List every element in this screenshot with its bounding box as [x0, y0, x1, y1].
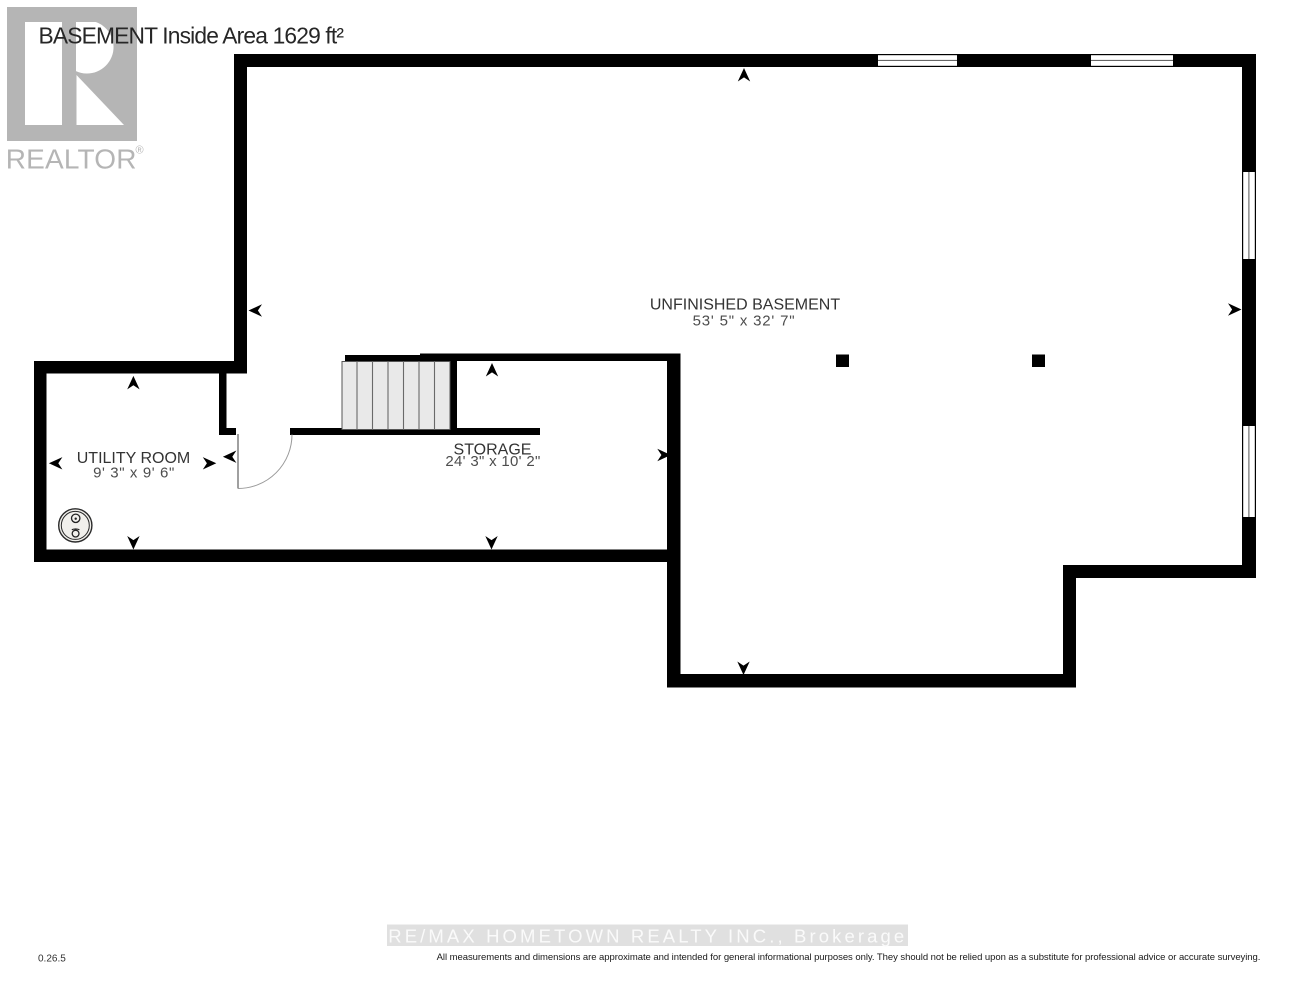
svg-text:53' 5" x 32' 7": 53' 5" x 32' 7" — [693, 313, 796, 330]
svg-text:0.26.5: 0.26.5 — [38, 954, 66, 965]
svg-text:9' 3" x 9' 6": 9' 3" x 9' 6" — [93, 465, 175, 482]
svg-text:BASEMENT Inside Area 1629 ft²: BASEMENT Inside Area 1629 ft² — [39, 23, 345, 49]
svg-text:UNFINISHED BASEMENT: UNFINISHED BASEMENT — [650, 296, 840, 313]
svg-text:RE/MAX HOMETOWN REALTY INC., B: RE/MAX HOMETOWN REALTY INC., Brokerage — [388, 926, 907, 947]
svg-text:All measurements and dimension: All measurements and dimensions are appr… — [437, 952, 1261, 963]
svg-text:REALTOR: REALTOR — [6, 144, 137, 175]
svg-text:24' 3" x 10' 2": 24' 3" x 10' 2" — [445, 453, 540, 470]
svg-text:®: ® — [136, 145, 144, 157]
